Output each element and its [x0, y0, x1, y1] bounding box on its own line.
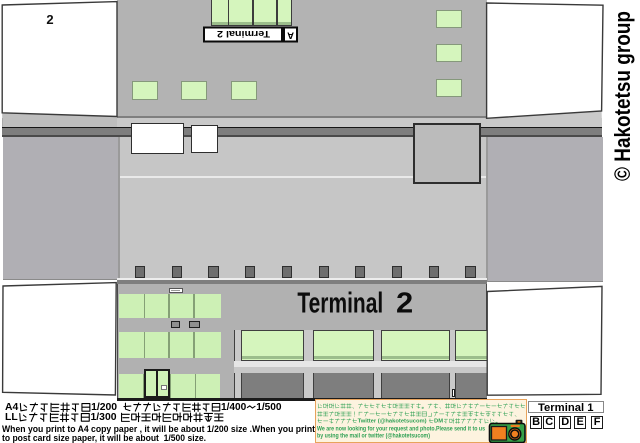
svg-text:Terminal 1: Terminal 1	[538, 402, 594, 413]
svg-text:to post card size paper, it wi: to post card size paper, it will be abou…	[2, 433, 206, 443]
svg-text:DM: DM	[434, 419, 443, 425]
svg-text:© Hakotetsu group: © Hakotetsu group	[610, 11, 635, 181]
svg-text:by using the mail or twitter (: by using the mail or twitter (@hakotetsu…	[317, 433, 430, 439]
svg-text:LL: LL	[5, 412, 18, 423]
svg-text:1/300: 1/300	[91, 412, 117, 423]
svg-text:Twitter (@hakotetsucom): Twitter (@hakotetsucom)	[357, 419, 428, 425]
